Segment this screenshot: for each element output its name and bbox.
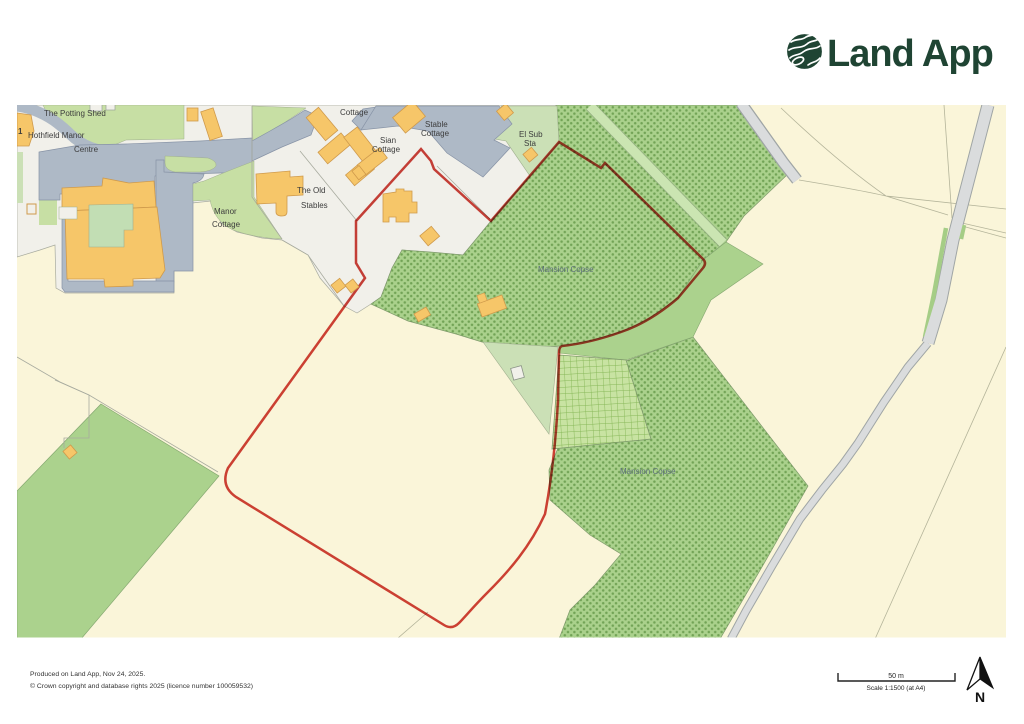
svg-text:Cottage: Cottage <box>421 129 450 138</box>
svg-text:Land App: Land App <box>827 33 993 75</box>
svg-text:Cottage: Cottage <box>340 108 369 117</box>
svg-text:Manor: Manor <box>214 207 237 216</box>
svg-text:Stable: Stable <box>425 120 448 129</box>
svg-text:The Old: The Old <box>297 186 325 195</box>
svg-text:Sian: Sian <box>380 136 396 145</box>
svg-text:Centre: Centre <box>74 145 99 154</box>
svg-text:Cottage: Cottage <box>212 220 241 229</box>
svg-text:Hothfield Manor: Hothfield Manor <box>28 131 85 140</box>
svg-text:Cottage: Cottage <box>372 145 401 154</box>
svg-text:Sta: Sta <box>524 139 537 148</box>
svg-text:El Sub: El Sub <box>519 130 543 139</box>
svg-text:N: N <box>975 689 985 705</box>
svg-text:The Potting Shed: The Potting Shed <box>44 109 106 118</box>
svg-text:Mansion Copse: Mansion Copse <box>620 467 676 476</box>
svg-text:Scale 1:1500 (at A4): Scale 1:1500 (at A4) <box>867 685 926 692</box>
svg-text:Produced on Land App, Nov 24,: Produced on Land App, Nov 24, 2025. <box>30 671 145 678</box>
svg-text:50 m: 50 m <box>888 673 904 680</box>
svg-text:© Crown copyright and database: © Crown copyright and database rights 20… <box>30 682 253 690</box>
svg-text:Stables: Stables <box>301 201 328 210</box>
svg-text:1: 1 <box>18 127 23 136</box>
svg-text:Mansion Copse: Mansion Copse <box>538 265 594 274</box>
